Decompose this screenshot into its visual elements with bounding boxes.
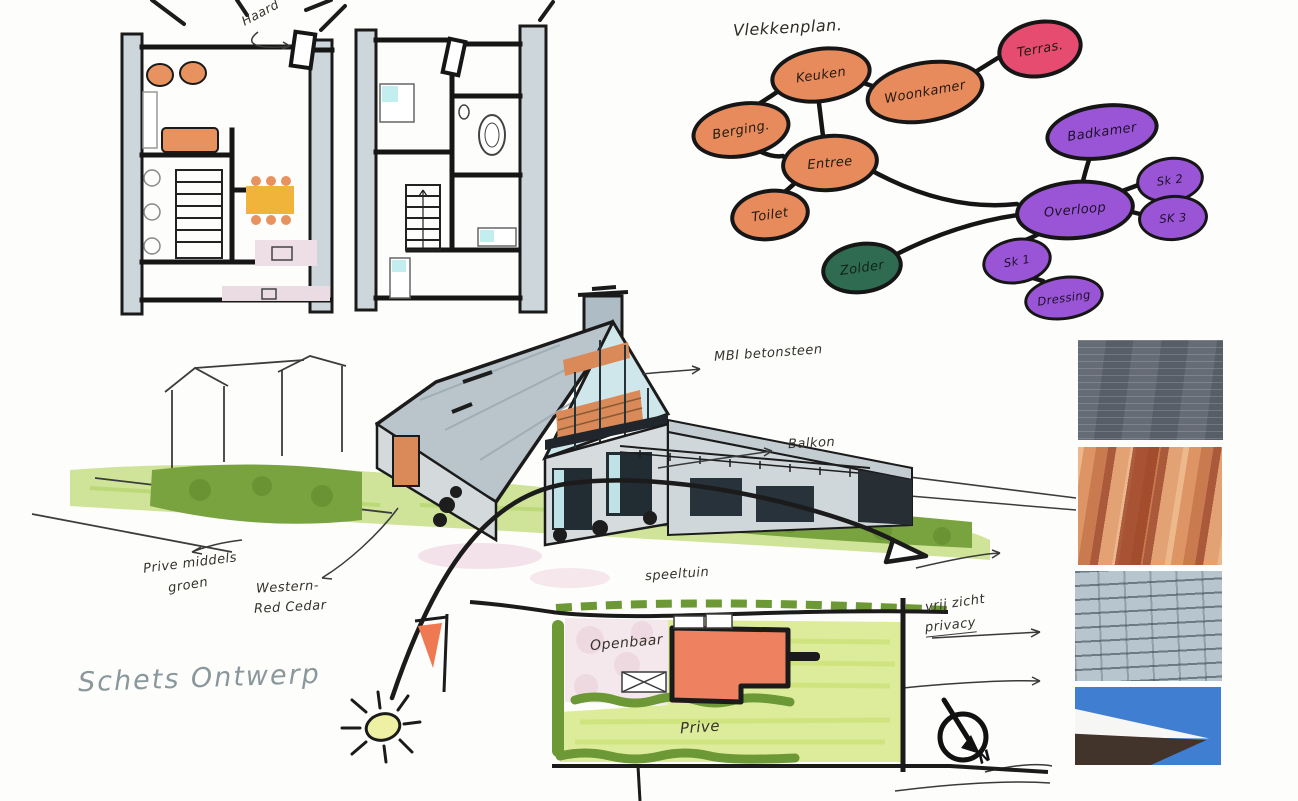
plan2-left-wall-band: [356, 30, 376, 310]
floor-plan-ground: [122, 32, 332, 314]
plan1-right-wall-band: [310, 40, 332, 312]
material-swatch-concrete-brick: [1078, 340, 1223, 440]
bubble-node-label: Badkamer: [1066, 120, 1137, 145]
bubble-node-label: Entree: [807, 154, 853, 173]
pink-blush: [418, 543, 542, 569]
plan1-fireplace: [291, 32, 316, 68]
window-2-glint: [609, 455, 620, 513]
site-hedge-left: [552, 620, 564, 757]
bubble-node-label: Sk 2: [1156, 171, 1184, 189]
bubble-node-label: Keuken: [795, 64, 847, 86]
plan1-sofa: [162, 128, 218, 152]
bubble-node-label: Toilet: [751, 205, 790, 225]
flag-triangle: [418, 623, 442, 668]
house-perspective-sketch: [32, 287, 1076, 588]
window-1-glint: [554, 470, 564, 528]
plan1-stairs: [176, 170, 222, 258]
mbi-arrow: [642, 366, 700, 374]
pink-blush-2: [530, 568, 610, 588]
cedar-door: [393, 436, 419, 486]
extension-window-1: [690, 478, 742, 516]
bubble-node-label: Sk 1: [1003, 252, 1032, 270]
building-stub: [786, 652, 820, 661]
stray-strokes: [152, 0, 553, 30]
prive-label: Prive: [679, 717, 720, 738]
sun: [342, 692, 420, 762]
neighbour-houses: [32, 356, 392, 552]
plan1-kitchen-counter: [255, 240, 317, 266]
bubble-node-label: Berging.: [711, 118, 771, 143]
site-boundary-bottom: [552, 766, 1048, 772]
bottom-curve-2: [895, 782, 1050, 791]
bubble-node-label: Woonkamer: [883, 77, 966, 106]
bubble-node-label: Overloop: [1043, 200, 1106, 220]
sketch-page: Vlekkenplan. Keuken Woonkamer Terras. Be…: [0, 0, 1298, 801]
material-swatch-roof-edge-sky: [1075, 687, 1221, 765]
lower-arrow: [903, 677, 1040, 688]
material-swatch-red-cedar: [1078, 447, 1222, 565]
bubble-node-label: Terras.: [1016, 38, 1065, 61]
plan2-stairs: [406, 185, 440, 250]
site-line-below: [638, 766, 640, 801]
plan2-right-wall-band: [520, 26, 546, 312]
plan1-furniture: [143, 62, 330, 301]
bubble-node-label: Zolder: [839, 257, 885, 278]
bubble-node-label: Dressing: [1036, 287, 1091, 308]
plan1-left-wall-band: [122, 34, 142, 314]
site-hedge-top: [556, 603, 948, 610]
floor-plan-upper: [356, 26, 546, 312]
plan2-flue: [443, 39, 466, 76]
bubble-node-label: SK 3: [1159, 210, 1187, 226]
plan1-dining-table: [246, 186, 294, 214]
balkon-label: Balkon: [788, 435, 836, 452]
chimney-cap: [578, 287, 628, 295]
material-swatch-slate-roof: [1075, 571, 1222, 681]
plan2-bathroom: [459, 105, 505, 155]
